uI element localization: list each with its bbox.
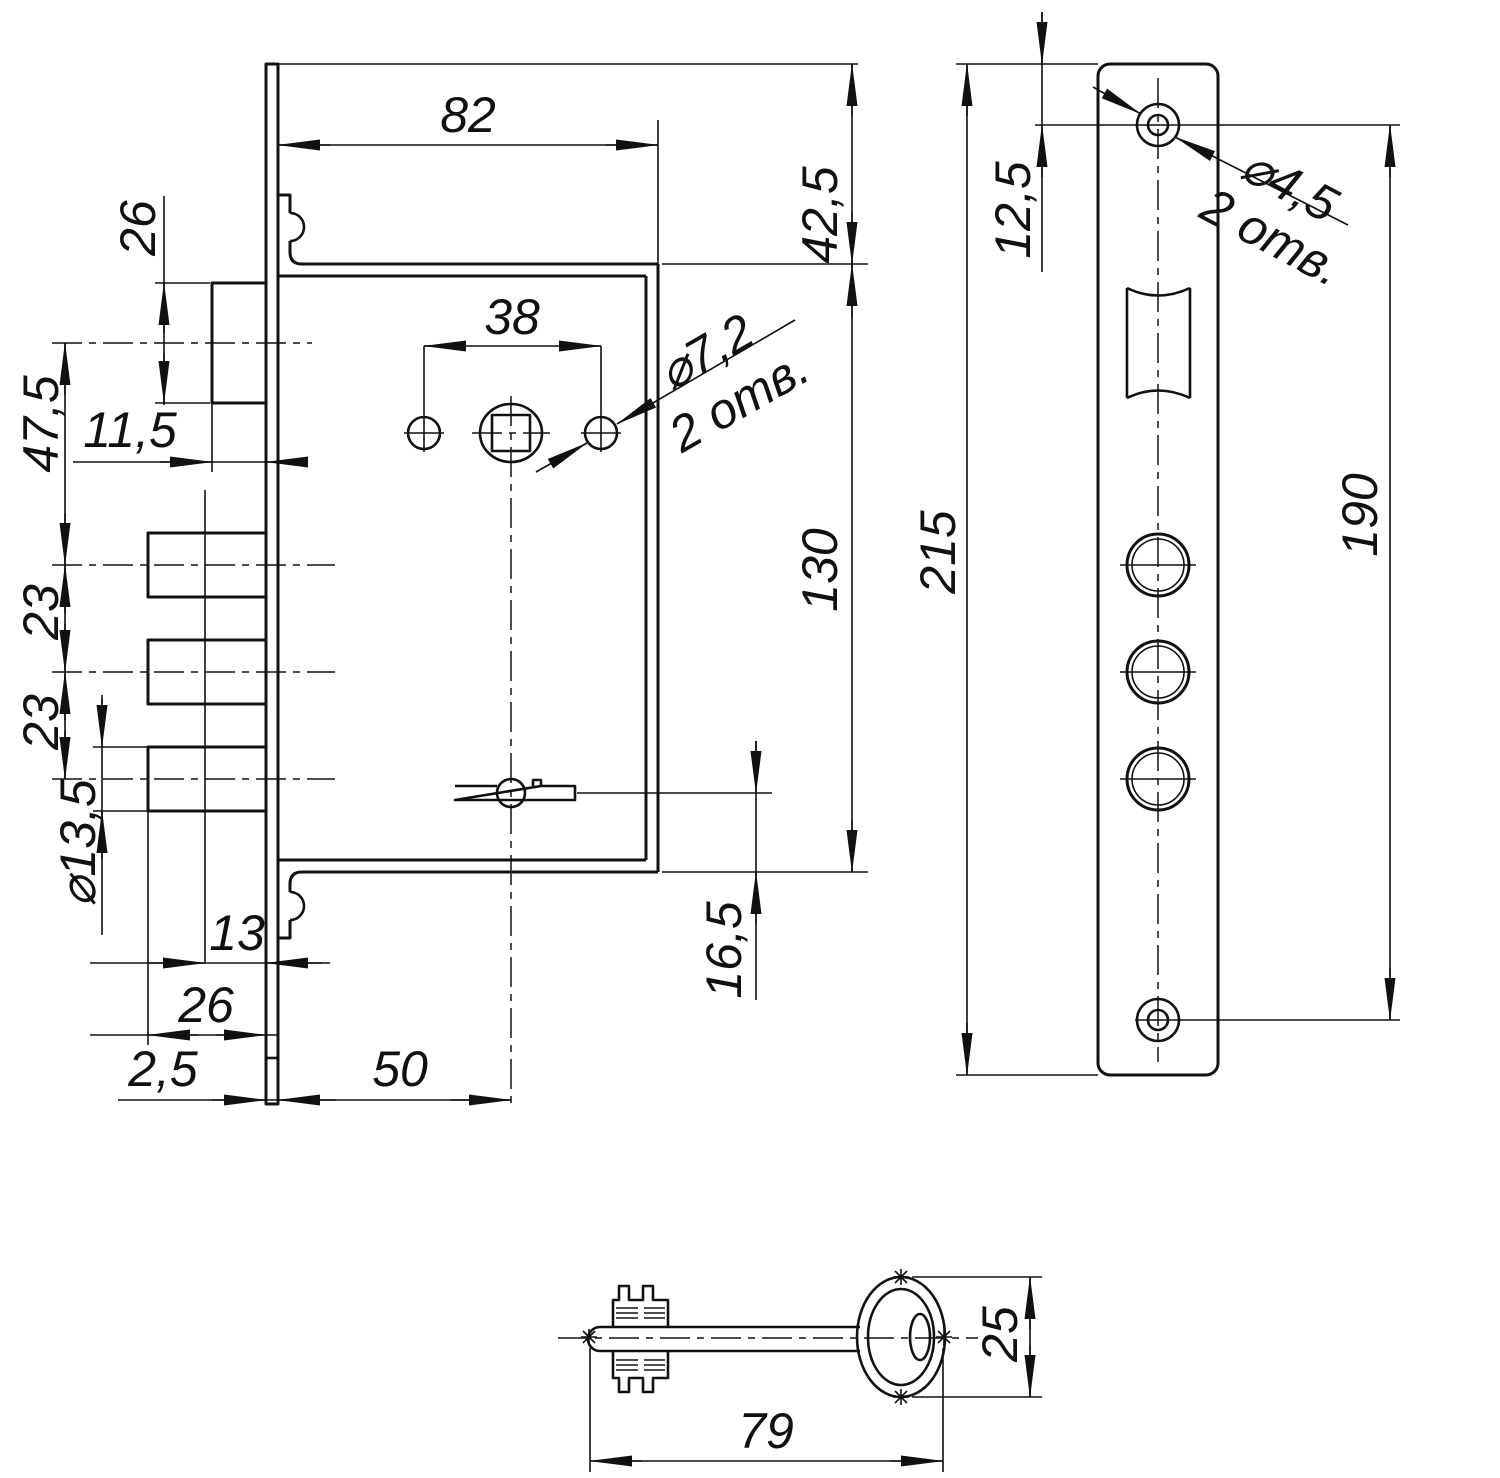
dim-label: 47,5 [13, 375, 69, 473]
rivet-top [290, 213, 304, 241]
dim-label: 50 [372, 1041, 428, 1097]
dim-label: 79 [738, 1403, 794, 1459]
faceplate-edge [266, 64, 858, 1104]
dim-spindle-hole-span: 38 [424, 289, 601, 452]
dim-latch-protrusion: 11,5 [73, 402, 308, 462]
screw-hole-bottom [1135, 999, 1400, 1041]
drawing-sheet: 82 42,5 130 16,5 38 ⌀7,2 2 отв. [0, 0, 1500, 1478]
dim-label: 38 [484, 289, 540, 345]
spindle-and-holes [404, 404, 621, 462]
dim-screw-top-offset: 12,5 [985, 12, 1042, 272]
key-view: 79 25 [558, 1269, 1042, 1472]
dim-label: 82 [440, 87, 496, 143]
dim-bolt-throw: 26 [90, 977, 278, 1035]
dim-latch-height: 26 [110, 196, 210, 405]
dim-label: 13 [209, 905, 265, 961]
dim-bolt-pitch-2: 23 [13, 672, 69, 779]
dim-backset: 50 [372, 1041, 511, 1100]
dim-label: ⌀13,5 [50, 779, 106, 907]
dim-label: 11,5 [83, 402, 177, 458]
dim-lever-offset: 16,5 [696, 741, 756, 1000]
dim-label: 190 [1332, 473, 1388, 557]
dim-bolt-pitch-1: 23 [13, 565, 69, 672]
dim-plate-thickness: 2,5 [118, 1041, 511, 1100]
dim-label: 130 [792, 528, 848, 612]
dim-bolt-step: 13 [90, 905, 330, 963]
dim-label: 23 [13, 694, 69, 751]
lock-technical-drawing: 82 42,5 130 16,5 38 ⌀7,2 2 отв. [0, 0, 1500, 1478]
dim-label: 26 [177, 977, 234, 1033]
dim-label: 26 [110, 200, 166, 257]
dim-label: 23 [13, 584, 69, 641]
key-bow [857, 1277, 945, 1397]
lock-case [278, 195, 658, 938]
dim-screw-hole-dia-leader: ⌀4,5 2 отв. [1093, 87, 1352, 297]
dim-label: 42,5 [792, 166, 848, 264]
dim-key-length: 79 [590, 1348, 943, 1472]
latch-bolt [212, 283, 266, 472]
dim-label: 12,5 [985, 161, 1041, 259]
key-bit [613, 1286, 668, 1392]
dim-label: 2,5 [127, 1041, 198, 1097]
dim-top-offset: 42,5 [662, 64, 868, 264]
dim-fixing-hole-dia-leader: ⌀7,2 2 отв. [536, 303, 818, 472]
dim-label: 215 [910, 510, 966, 595]
keyhole-lever [455, 779, 772, 807]
deadbolts [148, 490, 266, 1045]
rivet-bottom [290, 892, 304, 920]
dim-case-depth: 82 [278, 87, 658, 264]
key-shaft [588, 1327, 860, 1351]
dim-label: 16,5 [696, 901, 752, 999]
dim-label: 25 [972, 1306, 1028, 1363]
